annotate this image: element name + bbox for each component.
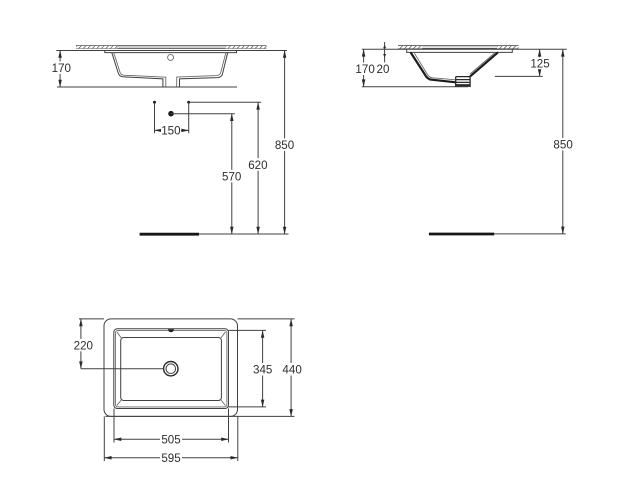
- svg-text:850: 850: [275, 139, 294, 152]
- svg-text:170: 170: [355, 63, 374, 76]
- svg-text:20: 20: [377, 63, 390, 76]
- svg-text:850: 850: [553, 139, 572, 152]
- svg-text:570: 570: [222, 170, 241, 183]
- svg-text:440: 440: [282, 364, 301, 377]
- svg-text:595: 595: [161, 452, 180, 465]
- svg-text:345: 345: [253, 364, 272, 377]
- svg-text:220: 220: [74, 340, 93, 353]
- svg-text:150: 150: [161, 124, 180, 137]
- svg-text:125: 125: [530, 58, 549, 71]
- svg-text:620: 620: [248, 159, 267, 172]
- svg-text:170: 170: [52, 62, 71, 75]
- svg-text:505: 505: [161, 434, 180, 447]
